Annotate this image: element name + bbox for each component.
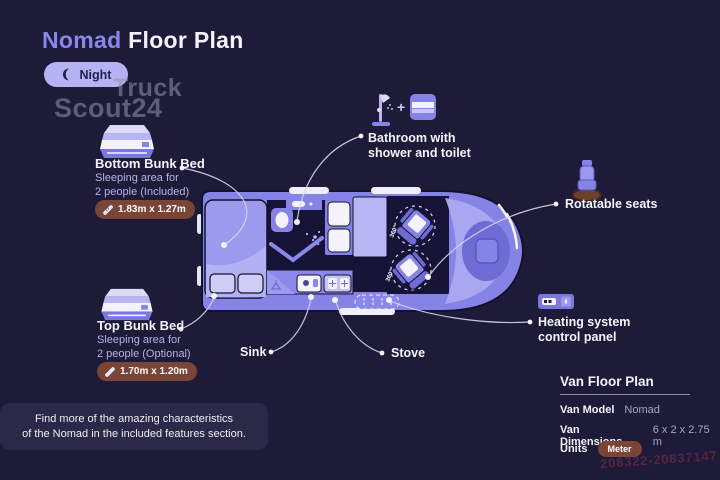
- top-bunk-dimensions-badge: 1.70m x 1.20m: [97, 362, 197, 381]
- van-floorplan-illustration: 360° 360°: [189, 186, 534, 316]
- heating-label-1: Heating system: [538, 315, 630, 330]
- spec-label-van-model: Van Model: [560, 404, 614, 416]
- van-dinette-cushion-1: [328, 202, 350, 226]
- moon-icon: [61, 68, 74, 81]
- stove-label: Stove: [391, 346, 425, 361]
- spec-value-van-dimensions: 6 x 2 x 2.75 m: [653, 424, 720, 448]
- spec-row-van-model: Van Model Nomad: [560, 404, 660, 416]
- spec-value-van-model: Nomad: [624, 404, 659, 416]
- shower-icon: [369, 90, 395, 128]
- van-dinette-cushion-2: [328, 229, 350, 252]
- seat-icon: [571, 158, 603, 202]
- plus-sign: +: [397, 99, 405, 115]
- bottom-bunk-dimensions-badge: 1.83m x 1.27m: [95, 200, 195, 219]
- nomad-floorplan-page: Nomad Floor Plan Night Truck Scout24: [0, 0, 720, 480]
- page-title-accent: Nomad: [42, 27, 121, 53]
- ruler-icon: [105, 367, 115, 377]
- van-dinette: [325, 197, 387, 257]
- page-title-rest: Floor Plan: [128, 27, 243, 53]
- top-bunk-dimensions: 1.70m x 1.20m: [120, 366, 188, 377]
- rotatable-seats-label: Rotatable seats: [565, 197, 657, 212]
- ruler-icon: [103, 205, 113, 215]
- spec-panel-divider: [560, 394, 690, 395]
- van-roof-vent-2: [371, 187, 421, 194]
- spec-label-units: Units: [560, 443, 588, 455]
- van-bed: [205, 200, 267, 298]
- bottom-bunk-subtitle-1: Sleeping area for: [95, 172, 189, 186]
- brand-watermark-line2: Scout24: [54, 95, 163, 122]
- bottom-bunk-subtitle-2: 2 people (Included): [95, 186, 189, 200]
- top-bunk-title: Top Bunk Bed: [97, 318, 184, 333]
- van-bed-pillow-2: [238, 274, 263, 293]
- page-title: Nomad Floor Plan: [42, 27, 244, 54]
- bottom-bunk-title: Bottom Bunk Bed: [95, 156, 205, 171]
- night-mode-label: Night: [80, 68, 112, 82]
- spec-panel-title: Van Floor Plan: [560, 374, 654, 389]
- bathroom-label-1: Bathroom with: [368, 131, 471, 146]
- sink-label: Sink: [240, 345, 266, 360]
- top-bunk-subtitle-1: Sleeping area for: [97, 334, 191, 348]
- bathroom-label-2: shower and toilet: [368, 146, 471, 161]
- heating-label-2: control panel: [538, 330, 630, 345]
- bottom-bunk-dimensions: 1.83m x 1.27m: [118, 204, 186, 215]
- bunk-bed-icon-optional: [98, 286, 156, 322]
- footer-note: Find more of the amazing characteristics…: [0, 403, 268, 450]
- bunk-bed-icon: [98, 122, 156, 160]
- van-roof-vent-1: [289, 187, 329, 194]
- van-heating-unit: [355, 295, 399, 309]
- footer-note-line2: of the Nomad in the included features se…: [22, 427, 246, 442]
- van-bed-pillow-1: [210, 274, 235, 293]
- heating-panel-icon: [538, 294, 574, 310]
- footer-note-line1: Find more of the amazing characteristics: [35, 412, 233, 427]
- top-bunk-subtitle-2: 2 people (Optional): [97, 348, 191, 362]
- van-kitchen: [267, 270, 353, 294]
- toilet-icon: [409, 93, 437, 121]
- van-dinette-table: [353, 197, 387, 257]
